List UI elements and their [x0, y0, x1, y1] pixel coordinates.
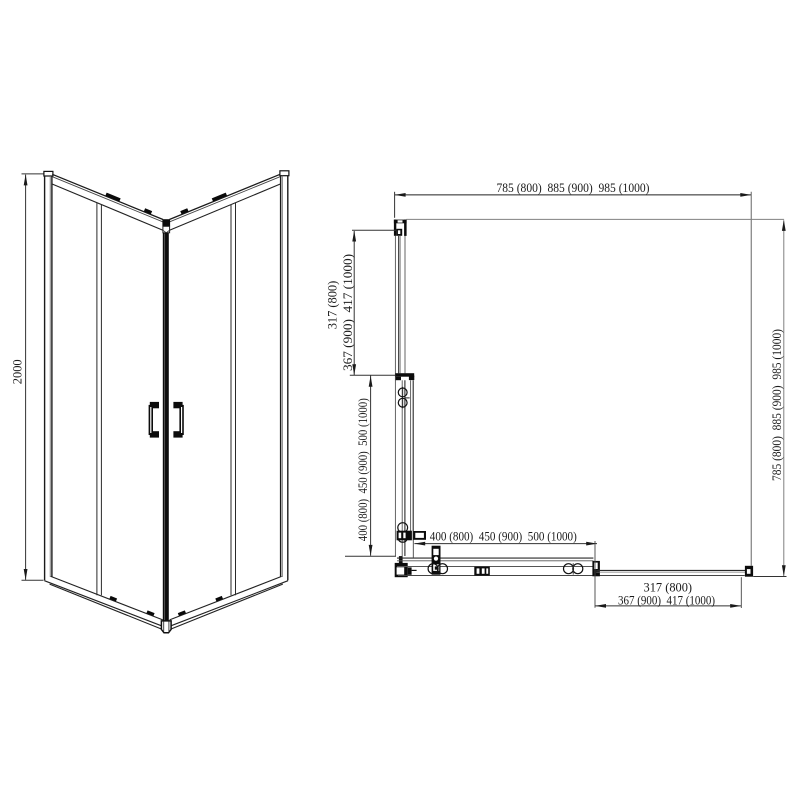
svg-text:367 (900) 417 (1000): 367 (900) 417 (1000): [618, 593, 715, 607]
svg-text:400 (800) 450 (900) 500 (100: 400 (800) 450 (900) 500 (1000): [356, 398, 370, 541]
svg-text:785 (800) 885 (900) 985 (100: 785 (800) 885 (900) 985 (1000): [497, 181, 650, 195]
svg-text:367 (900) 417 (1000): 367 (900) 417 (1000): [341, 254, 355, 371]
svg-text:2000: 2000: [11, 359, 25, 384]
svg-text:400 (800) 450 (900) 500 (100: 400 (800) 450 (900) 500 (1000): [430, 530, 577, 544]
svg-text:785 (800) 885 (900) 985 (100: 785 (800) 885 (900) 985 (1000): [770, 329, 784, 481]
svg-text:317 (800): 317 (800): [326, 281, 340, 330]
